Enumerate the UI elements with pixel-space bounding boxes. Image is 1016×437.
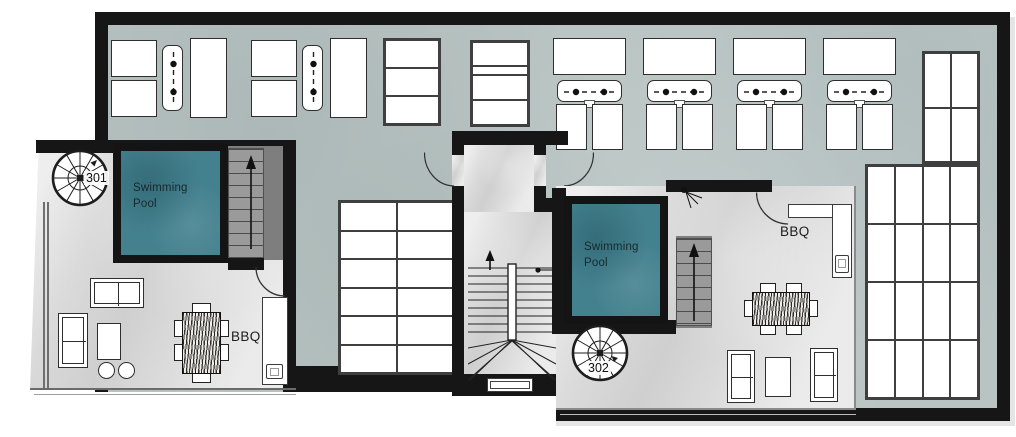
lounger-group bbox=[823, 38, 896, 151]
daybed bbox=[553, 38, 626, 75]
sink bbox=[835, 255, 849, 273]
dining-table bbox=[182, 312, 221, 374]
up-arrow-icon bbox=[229, 149, 263, 257]
sun-lounger bbox=[111, 80, 157, 117]
chair bbox=[809, 300, 818, 317]
chair bbox=[220, 344, 229, 361]
sun-lounger bbox=[251, 40, 297, 77]
bbq-counter bbox=[832, 204, 852, 278]
sun-lounger bbox=[646, 104, 677, 150]
core-top-wall bbox=[452, 131, 568, 145]
chair bbox=[192, 373, 211, 383]
core-right-wall bbox=[534, 145, 546, 155]
daybed bbox=[823, 38, 896, 75]
skylight-grid bbox=[338, 200, 455, 375]
pergola-grid bbox=[922, 51, 980, 164]
flat-lounger-stack bbox=[383, 38, 441, 126]
side-table bbox=[302, 45, 323, 111]
sun-lounger bbox=[592, 104, 623, 150]
coffee-table bbox=[765, 357, 791, 397]
core-left-wall bbox=[452, 186, 464, 396]
chair bbox=[220, 320, 229, 337]
flat-lounger-stack bbox=[470, 40, 530, 127]
terrace-edge-line bbox=[34, 394, 296, 395]
daybed bbox=[733, 38, 806, 75]
sun-lounger bbox=[772, 104, 803, 150]
stairs-301 bbox=[228, 148, 264, 258]
coffee-table bbox=[97, 323, 121, 360]
sun-lounger bbox=[736, 104, 767, 150]
unit-number-301: 301 bbox=[84, 171, 109, 185]
unit-number-302: 302 bbox=[586, 361, 611, 375]
stairs-302 bbox=[676, 238, 712, 326]
lamp-icon bbox=[678, 184, 706, 212]
side-table bbox=[737, 80, 802, 102]
swimming-pool-301: Swimming Pool bbox=[113, 143, 228, 263]
door-arc-icon bbox=[756, 192, 789, 225]
daybed bbox=[643, 38, 716, 75]
chair bbox=[786, 325, 802, 335]
up-arrow-icon bbox=[677, 239, 711, 325]
sink bbox=[266, 364, 283, 379]
floor-plan: Swimming Pool BBQ 301 bbox=[0, 0, 1016, 437]
sun-lounger bbox=[111, 40, 157, 77]
loveseat bbox=[58, 313, 88, 368]
terrace-railing bbox=[47, 202, 49, 388]
sofa bbox=[727, 350, 755, 403]
pergola-grid bbox=[865, 164, 980, 400]
pouf bbox=[118, 362, 135, 379]
sun-lounger bbox=[826, 104, 857, 150]
plan-background-cut bbox=[88, 392, 556, 437]
daybed bbox=[330, 38, 367, 118]
core-doorway bbox=[534, 155, 546, 186]
lounger-group bbox=[643, 38, 716, 151]
swimming-pool-302: Swimming Pool bbox=[564, 196, 668, 324]
lounger-group bbox=[733, 38, 806, 151]
sun-lounger bbox=[862, 104, 893, 150]
side-table bbox=[162, 45, 183, 111]
sun-lounger bbox=[251, 80, 297, 117]
bbq-label: BBQ bbox=[231, 329, 261, 344]
sofa bbox=[90, 278, 144, 308]
terrace-railing bbox=[43, 202, 45, 388]
sun-lounger bbox=[682, 104, 713, 150]
daybed bbox=[190, 38, 227, 118]
terrace-edge-line bbox=[560, 414, 856, 415]
dining-table bbox=[752, 292, 810, 326]
bbq-label: BBQ bbox=[780, 224, 810, 239]
door-arc-icon bbox=[255, 266, 286, 297]
side-table bbox=[827, 80, 892, 102]
core-stairs bbox=[468, 250, 556, 382]
pool-label: Swimming Pool bbox=[133, 181, 195, 212]
door-arc-icon bbox=[424, 152, 455, 187]
bbq-counter bbox=[262, 297, 288, 385]
chair bbox=[760, 325, 776, 335]
umbrella-axis-icon bbox=[163, 46, 184, 112]
umbrella-axis-icon bbox=[303, 46, 324, 112]
pouf bbox=[98, 362, 115, 379]
side-table bbox=[647, 80, 712, 102]
pool-label: Swimming Pool bbox=[584, 240, 646, 271]
side-table bbox=[557, 80, 622, 102]
door-arc-icon bbox=[563, 152, 594, 187]
sofa bbox=[810, 348, 838, 402]
core-vestibule bbox=[464, 143, 534, 213]
